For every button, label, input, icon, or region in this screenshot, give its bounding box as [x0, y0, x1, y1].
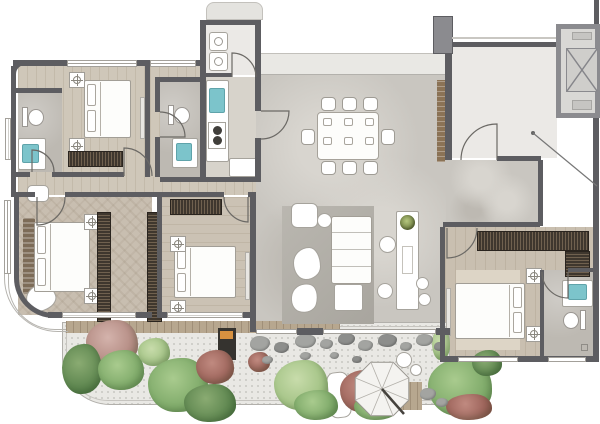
annotation-leader-line — [531, 131, 597, 186]
door-arc-bedroom-3 — [224, 197, 248, 222]
elevator-x-icon — [567, 49, 597, 91]
door-arc-entry — [461, 124, 497, 160]
door-arc-master-bedroom — [37, 197, 65, 225]
door-arc-utility — [232, 53, 256, 77]
door-arc-bedroom-4 — [447, 228, 477, 258]
door-arc-bathroom-2 — [160, 112, 185, 137]
parasol-icon — [355, 362, 409, 416]
door-arc-bedroom-1 — [124, 148, 152, 176]
floor-plan — [0, 0, 600, 424]
door-arc-bathroom-1 — [32, 150, 54, 172]
door-swing-arcs — [32, 53, 568, 298]
door-arc-ensuite — [542, 272, 568, 298]
plan-overlay — [0, 0, 600, 424]
door-arc-kitchen — [261, 111, 289, 139]
